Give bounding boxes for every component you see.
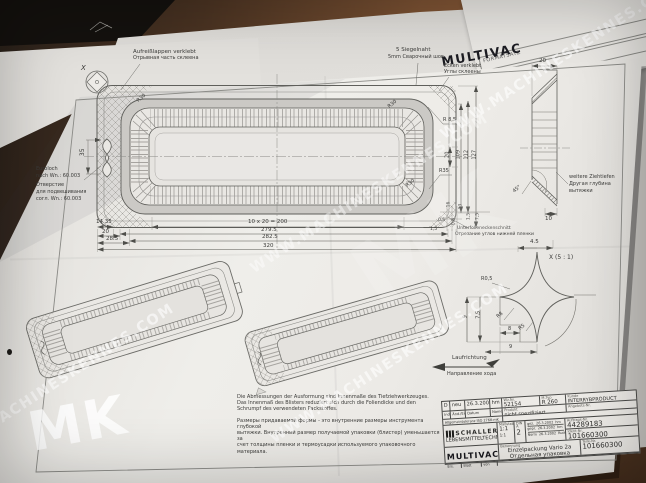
tb-sign2-name: hm <box>557 425 563 430</box>
tb-massstab-value2: 1:1 <box>499 433 506 438</box>
label-detail-title: X (5 : 1) <box>549 255 573 262</box>
dim-s0-5: 0,5 <box>438 218 445 223</box>
label-siegelnaht-de: 5 Siegelnaht <box>396 47 431 53</box>
dim-282-5: 282.5 <box>262 234 278 240</box>
tb-footer-von: von <box>482 461 498 467</box>
tb-sign3-date: 26.3.2002 <box>539 431 557 437</box>
dim-28-5: 28.5 <box>106 236 118 242</box>
dim-s1-5b: 1,5 <box>430 227 437 232</box>
tb-sign1-name: hm <box>555 419 561 424</box>
dim-320: 320 <box>263 243 274 249</box>
tb-rev-change: neu <box>450 401 466 411</box>
tb-sign1-label: gez. <box>527 421 534 426</box>
dim-x4-5: 4.5 <box>530 239 539 245</box>
multivac-wordmark: MULTIVAC <box>446 445 497 461</box>
dim-x9: 9 <box>463 306 469 328</box>
dim-r8-5: R 8,5 <box>443 118 456 124</box>
label-euroloch-ru1: Отверстие <box>36 183 64 189</box>
dim-sv10: 10 <box>545 216 552 222</box>
dim-279-5: 279.5 <box>261 227 277 233</box>
tb-massstab-cell: Maßstab 1:1 1:1 <box>497 422 515 444</box>
label-ziehtiefen-ru2: вытяжки <box>569 189 593 195</box>
dim-xr0-5: R0,5 <box>481 277 492 283</box>
tb-rev-name: hm <box>490 398 503 408</box>
label-euroloch-de1: Euroloch <box>36 167 58 173</box>
tb-schaller-logo: SCHALLER LEBENSMITTELTECHNIK <box>443 423 498 447</box>
tb-lbl-change: Änd./Ers. <box>451 411 466 419</box>
tb-sign2-label: gepr. <box>527 427 536 432</box>
tb-lbl-name: Name <box>491 408 503 416</box>
label-laufrichtung-ru: Направление хода <box>447 372 496 378</box>
tb-order-cell: Auftrags-Nr. 44289183 Ident-Nr. 10166030… <box>565 414 638 439</box>
dim-v20: 20 <box>445 144 451 166</box>
tb-rev-date: 26.3.2002 <box>465 399 490 409</box>
dim-14-35: 14.35 <box>96 219 112 225</box>
title-block: D neu 26.3.2002 hm Wz.Nr. 52154 M.Typ R … <box>441 389 640 465</box>
notes-block: Die Abmessungen der Ausformung sind Inne… <box>237 394 442 455</box>
label-x-callout: X <box>81 65 86 72</box>
tb-mtyp-cell: M.Typ R 260 <box>540 395 566 406</box>
tb-sign-cell: gez. 26.3.2002 hm gepr. 26.3.2002 hm Nor… <box>525 419 566 442</box>
dim-s1-5: 1,5 <box>467 206 472 228</box>
dim-s7-5: 7,5 <box>476 206 481 228</box>
label-unterfolie-de: Unterfolieneckenschnitt <box>457 226 511 231</box>
dim-x7-5: 7,5 <box>476 304 482 326</box>
dim-sv20: 20 <box>539 58 546 64</box>
dim-r35: R35 <box>439 169 449 175</box>
label-ziehtiefen-de: weitere Ziehtiefen <box>569 175 615 181</box>
dim-35: 35 <box>80 141 87 163</box>
tb-footer-ers: Ers. <box>446 463 462 469</box>
label-euroloch-ru2: для подвешивания <box>36 190 86 196</box>
schaller-bars-icon <box>445 430 453 437</box>
hole-punch-dot <box>7 349 12 355</box>
dim-x9b: 9 <box>509 345 512 351</box>
note-ru-3: счет толщины пленки и термоусадки исполь… <box>237 442 442 454</box>
note-ru-1: Размеры придаваемой формы - это внутренн… <box>237 418 442 430</box>
dim-v112: 112 <box>464 144 470 166</box>
tb-format-value: 2 <box>516 428 521 436</box>
label-siegelnaht-ru: 5mm Сварочный шов <box>388 55 444 61</box>
label-laufrichtung-de: Laufrichtung <box>452 355 487 361</box>
dim-10x20: 10 x 20 = 200 <box>248 219 287 225</box>
label-euroloch-de2: nach Wn.: 60.003 <box>36 174 80 180</box>
dim-s0-6: 0,6 <box>452 211 457 233</box>
dim-x8: 8 <box>508 327 511 333</box>
dim-s13: 13 <box>459 196 464 218</box>
note-ru-2: вытяжки. Внутренний размер получаемой уп… <box>237 430 442 442</box>
photo-of-technical-drawing: FORMATSATZ FORMATSATZ MULTIVAC <box>0 0 646 483</box>
label-euroloch-ru3: согл. Wn.: 60.003 <box>36 197 81 203</box>
label-unterfolie-ru: Отрезание углов нижней пленки <box>455 232 534 237</box>
dim-v127: 127 <box>472 144 478 166</box>
dim-v109: 109 <box>456 144 462 166</box>
label-ziehtiefen-ru1: Другая глубина <box>569 182 611 188</box>
dim-20: 20 <box>102 229 109 235</box>
label-ecken-ru: Углы склеены <box>444 70 481 76</box>
tb-sign3-label: Norm <box>528 432 538 437</box>
tb-teile-value: 101660300 <box>582 441 637 452</box>
label-aufreisslappen-ru: Отрывная часть склеена <box>133 56 199 62</box>
